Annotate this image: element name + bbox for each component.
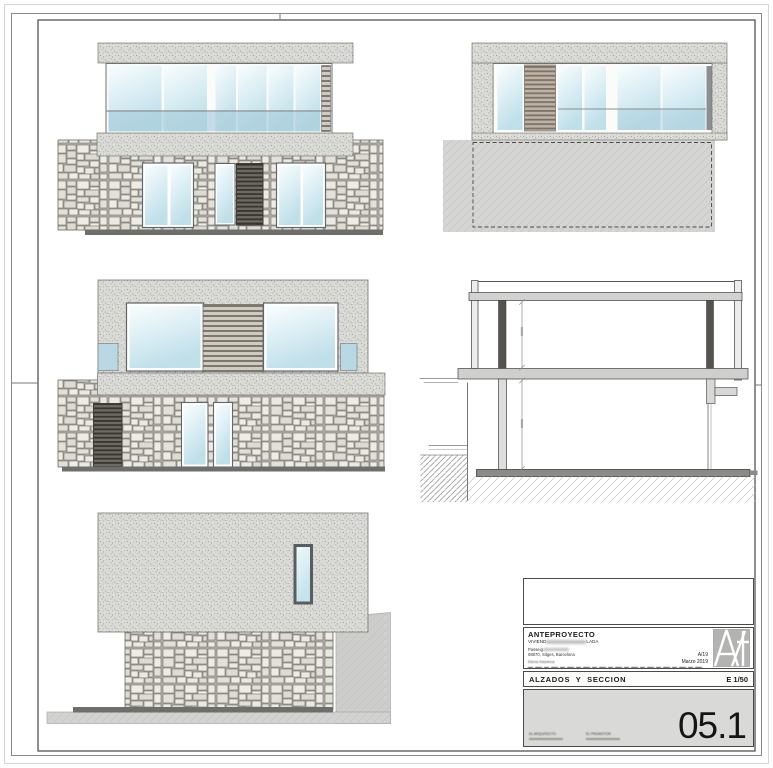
upper-glazing: [106, 64, 332, 134]
roof-parapet: [472, 43, 727, 63]
louvered-entry-door: [237, 164, 264, 226]
rear-elevation: [443, 43, 727, 232]
wall-left-lower: [499, 379, 507, 471]
sheet-title: ALZADOS Y SECCION: [529, 675, 626, 684]
side-elevation-right: [47, 513, 391, 724]
roof-parapet: [98, 43, 353, 63]
cross-section: [420, 281, 758, 503]
redacted-signature: [586, 738, 620, 740]
project-ref: A/19: [698, 652, 708, 658]
studio-contact-line-redacted: [528, 667, 703, 668]
ground-line: [73, 707, 333, 713]
redacted-signature: [529, 738, 563, 740]
signature-promoter: EL PROMOTOR: [586, 732, 620, 740]
louvered-door: [94, 404, 123, 467]
project-info: ANTEPROYECTO VIVIENDLADA Passeig 08870, …: [524, 628, 711, 668]
floor-band: [98, 373, 386, 395]
redacted-text: [546, 640, 586, 644]
dimension-lines: [520, 300, 525, 472]
author-name: Elena Kiseleva: [528, 659, 554, 664]
title-block-empty-box: [523, 578, 754, 625]
sheet-number: 05.1: [678, 707, 746, 744]
front-elevation: [58, 43, 383, 235]
author-date-row: Elena Kiseleva Marzo 2019: [528, 659, 708, 665]
issue-date: Marzo 2019: [682, 659, 708, 665]
floor-slab: [458, 369, 748, 380]
drawing-sheet: ANTEPROYECTO VIVIENDLADA Passeig 08870, …: [0, 0, 773, 768]
column-left: [499, 301, 507, 369]
hidden-lower-floor: [443, 140, 715, 232]
roof-slab: [469, 293, 742, 301]
louver-panel: [203, 305, 263, 374]
sheet-scale: E 1/50: [726, 675, 748, 684]
terrace-edge: [715, 388, 737, 396]
floor-band: [97, 133, 353, 156]
logo-monogram-icon: [713, 629, 750, 667]
ground-floor-openings: [143, 163, 326, 228]
studio-logo: [711, 628, 753, 668]
terrain-hatch-left: [421, 455, 468, 502]
louver-vent: [322, 66, 331, 132]
ground-line: [85, 230, 383, 236]
upper-glazing: [493, 64, 713, 134]
city-line: 08870, Sitges, Barcelona: [528, 652, 575, 658]
document-type: ANTEPROYECTO: [528, 630, 708, 639]
upper-volume: [98, 513, 368, 632]
side-elevation-left: [58, 280, 385, 472]
louver-panel: [525, 65, 556, 131]
balcony-glass-band: [109, 112, 321, 132]
column-right: [707, 301, 714, 369]
title-block: ANTEPROYECTO VIVIENDLADA Passeig 08870, …: [523, 578, 756, 747]
balcony-glass-right: [341, 344, 358, 371]
sheet-number-box: EL ARQUITECTO EL PROMOTOR 05.1: [523, 689, 754, 747]
project-name-line: VIVIENDLADA: [528, 639, 708, 645]
signature-architect: EL ARQUITECTO: [529, 732, 563, 740]
terrain-hatch-under: [468, 477, 755, 503]
upper-windows: [98, 303, 357, 374]
wall-left-upper: [472, 301, 479, 369]
ground-line: [62, 467, 385, 472]
balcony-glass-left: [98, 344, 118, 371]
ground-slab: [477, 470, 751, 477]
redacted-text: [543, 648, 569, 652]
city-ref-row: 08870, Sitges, Barcelona A/19: [528, 652, 708, 658]
sheet-title-bar: ALZADOS Y SECCION E 1/50: [523, 671, 754, 687]
title-block-info-box: ANTEPROYECTO VIVIENDLADA Passeig 08870, …: [523, 627, 754, 669]
stone-wall: [125, 632, 333, 710]
